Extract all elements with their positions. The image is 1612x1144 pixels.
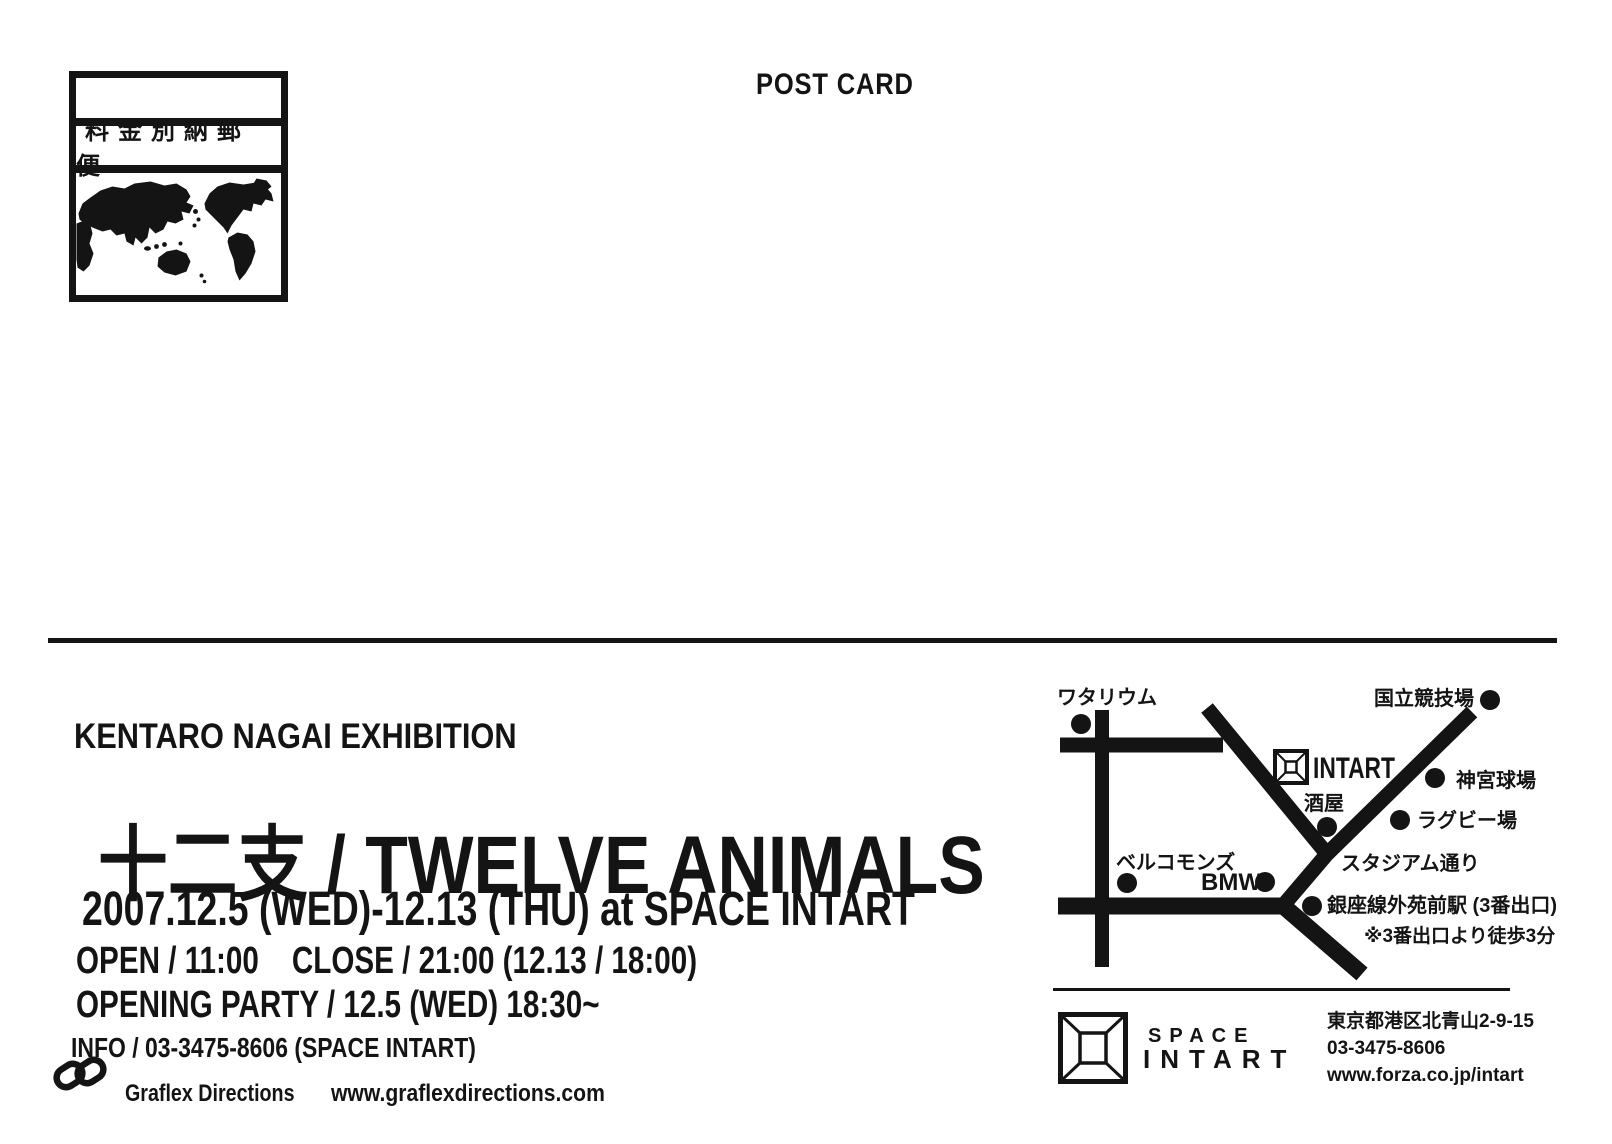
venue-tel: 03-3475-8606 [1327, 1035, 1534, 1062]
world-map-africa [77, 221, 94, 272]
venue-logotype-space: SPACE [1148, 1026, 1255, 1046]
world-map-island [203, 280, 207, 284]
map-dot-national-stadium [1480, 690, 1500, 710]
world-map-island [144, 246, 151, 250]
world-map-icon [76, 173, 281, 295]
credit-website-text: www.graflexdirections.com [331, 1082, 605, 1106]
map-label-stadium-street: スタジアム通り [1341, 852, 1480, 875]
venue-logotype-intart: INTART [1143, 1046, 1296, 1072]
credit-name: Graflex Directions [112, 1058, 332, 1106]
post-card-heading: POST CARD [737, 40, 941, 100]
intart-map-logo-corner-line [1277, 753, 1286, 762]
postage-mark-divider-bottom [76, 165, 281, 173]
map-dot-station [1302, 896, 1322, 916]
world-map-island [154, 244, 159, 249]
venue-website: www.forza.co.jp/intart [1327, 1062, 1534, 1089]
postage-mark-label: 料金別納郵便 [76, 126, 281, 165]
postage-mark: 料金別納郵便 [69, 71, 288, 302]
map-label-jingu-stadium: 神宮球場 [1456, 768, 1536, 792]
world-map-island [200, 274, 204, 278]
main-divider [48, 638, 1557, 643]
world-map-island [193, 209, 198, 214]
map-dot-sake-shop [1317, 817, 1337, 837]
map-dot-jingu-stadium [1425, 768, 1445, 788]
access-map: ワタリウム 国立競技場 INTART 酒屋 神宮球場 ラグビー場 ベルコモンズ … [1010, 648, 1610, 1000]
map-label-sake-shop: 酒屋 [1304, 792, 1344, 815]
space-intart-logo-corner-line [1063, 1062, 1081, 1079]
venue-address: 東京都港区北青山2-9-15 [1327, 1008, 1534, 1035]
space-intart-logo-corner-line [1105, 1017, 1123, 1034]
intart-map-logo-corner-line [1277, 772, 1286, 781]
graflex-logo-right-link [74, 1056, 107, 1087]
world-map-island [193, 224, 197, 228]
map-label-walk-note: ※3番出口より徒歩3分 [1364, 924, 1555, 947]
map-dot-watarium [1071, 714, 1091, 734]
graflex-logo-icon [51, 1053, 109, 1095]
map-label-watarium: ワタリウム [1057, 686, 1157, 709]
intart-map-logo [1275, 751, 1307, 783]
intart-map-logo-corner-line [1296, 753, 1305, 762]
space-intart-logo-corner-line [1063, 1017, 1081, 1034]
postcard-back: { "postcard": { "header": { "post_card_l… [0, 0, 1612, 1144]
venue-divider [1053, 988, 1510, 991]
info-line: INFO / 03-3475-8606 (SPACE INTART) [55, 1006, 564, 1062]
intart-map-logo-corner-line [1296, 772, 1305, 781]
credit-website: www.graflexdirections.com [318, 1058, 643, 1106]
space-intart-logo-corner-line [1105, 1062, 1123, 1079]
post-card-heading-text: POST CARD [756, 70, 914, 100]
map-dot-bell-commons [1117, 873, 1137, 893]
map-label-rugby-field: ラグビー場 [1417, 808, 1517, 832]
space-intart-logo [1058, 1012, 1128, 1084]
world-map-island [162, 242, 167, 247]
world-map-australia [158, 250, 191, 276]
intart-map-logo-inner-square [1286, 762, 1297, 773]
world-map-eurasia [79, 182, 194, 246]
venue-contact-block: 東京都港区北青山2-9-15 03-3475-8606 www.forza.co… [1327, 1008, 1534, 1089]
world-map-island [179, 242, 183, 246]
map-label-intart: INTART [1313, 752, 1395, 785]
credit-name-text: Graflex Directions [125, 1082, 295, 1106]
world-map-south-america [228, 233, 256, 281]
space-intart-logo-inner-square [1080, 1033, 1106, 1063]
map-label-bmw: BMW [1201, 869, 1261, 896]
map-label-station: 銀座線外苑前駅 (3番出口) [1327, 893, 1557, 917]
world-map-island [197, 218, 201, 222]
map-label-national-stadium: 国立競技場 [1374, 686, 1474, 710]
map-dot-rugby-field [1390, 810, 1410, 830]
